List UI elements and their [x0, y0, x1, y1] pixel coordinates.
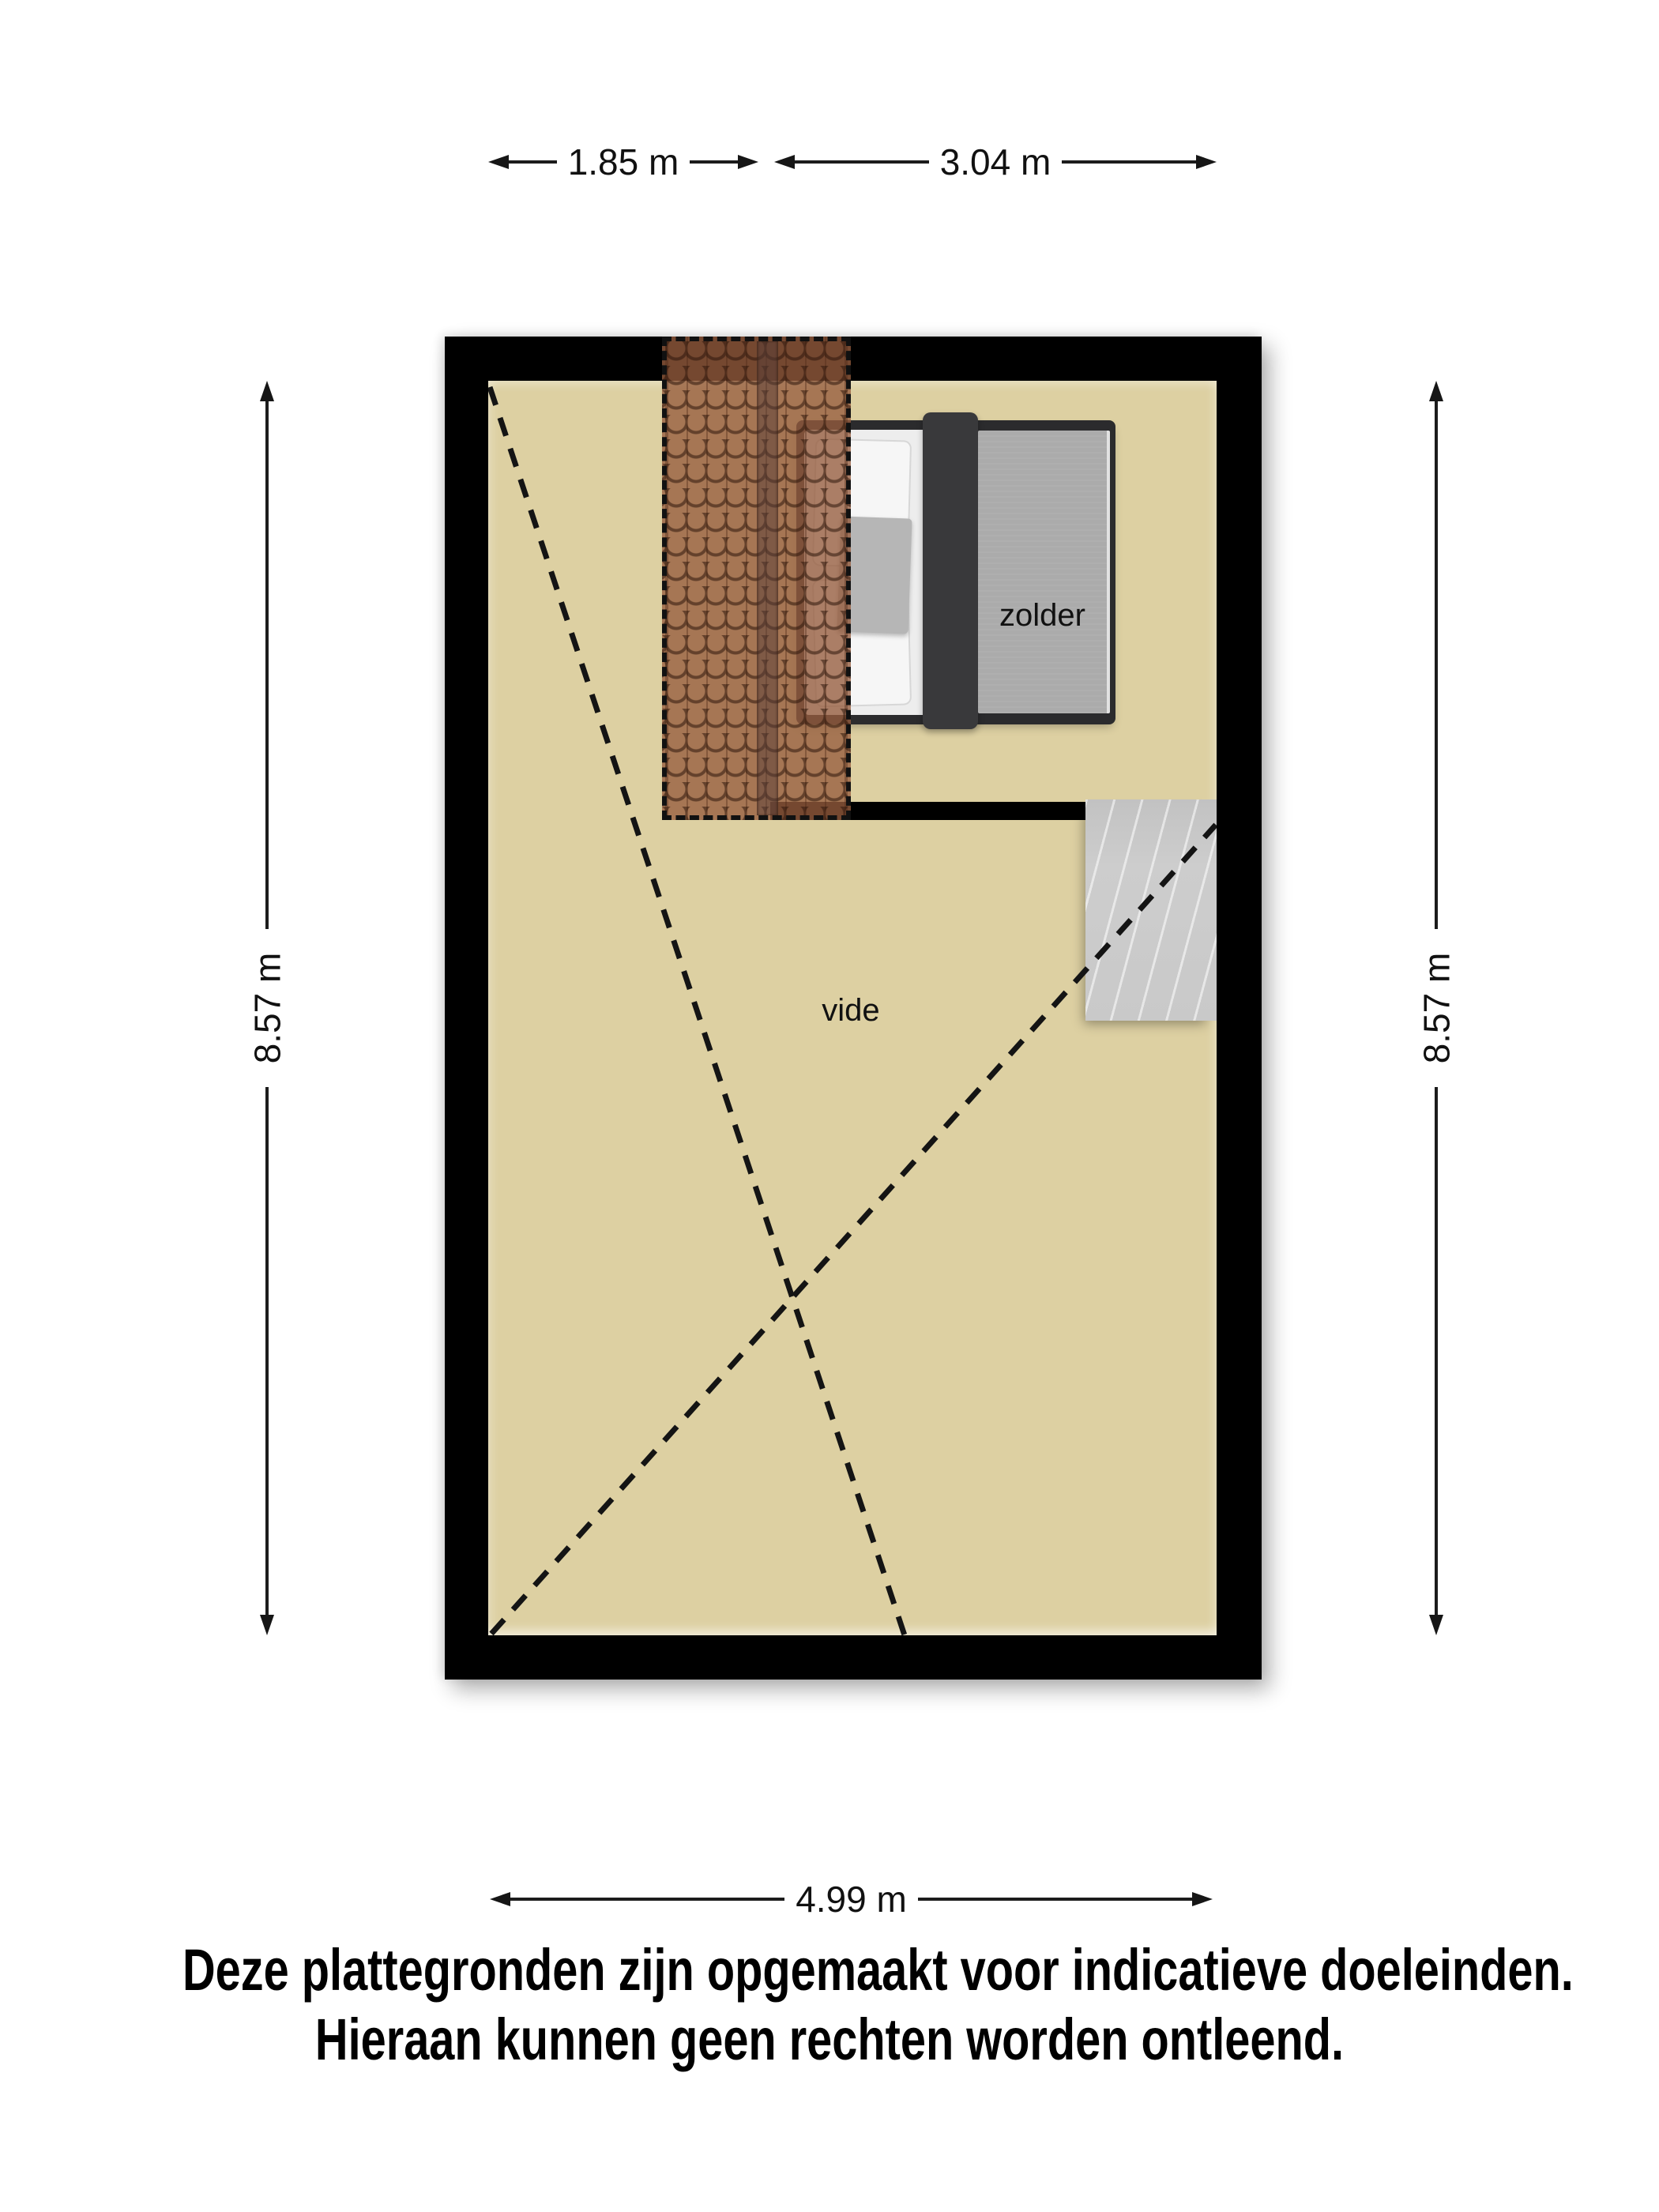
dimension-label: 3.04 m — [929, 144, 1063, 180]
dimension-left: 8.57 m — [243, 381, 291, 1635]
dimension-line — [1435, 1087, 1438, 1615]
arrowhead-up-icon — [260, 381, 274, 401]
dimension-line — [510, 1898, 784, 1901]
dimension-line — [690, 160, 738, 164]
floor-area: zolder vide — [488, 381, 1217, 1635]
arrowhead-left-icon — [774, 155, 795, 169]
dimension-line — [509, 160, 557, 164]
bed-duvet: zolder — [978, 431, 1110, 713]
dimension-line — [918, 1898, 1192, 1901]
room-label-vide: vide — [772, 993, 930, 1029]
dimension-line — [1062, 160, 1196, 164]
arrowhead-right-icon — [738, 155, 758, 169]
staircase — [1085, 799, 1217, 1021]
dimension-line — [265, 401, 269, 929]
dimension-label: 8.57 m — [1418, 953, 1454, 1064]
dimension-label: 4.99 m — [784, 1881, 918, 1917]
floorplan: zolder vide — [445, 337, 1262, 1680]
arrowhead-down-icon — [1429, 1615, 1443, 1635]
dimension-line — [1435, 401, 1438, 929]
dimension-label-box: 8.57 m — [212, 929, 323, 1087]
dimension-bottom: 4.99 m — [490, 1881, 1213, 1917]
dimension-line — [265, 1087, 269, 1615]
dimension-right: 8.57 m — [1413, 381, 1460, 1635]
dimension-line — [795, 160, 929, 164]
roof-overlay — [662, 337, 851, 820]
arrowhead-right-icon — [1196, 155, 1217, 169]
arrowhead-down-icon — [260, 1615, 274, 1635]
disclaimer: Deze plattegronden zijn opgemaakt voor i… — [0, 1935, 1659, 2075]
dimension-label-box: 8.57 m — [1381, 929, 1492, 1087]
arrowhead-left-icon — [490, 1892, 510, 1906]
dimension-label: 1.85 m — [557, 144, 690, 180]
arrowhead-up-icon — [1429, 381, 1443, 401]
dimension-top-left: 1.85 m — [488, 144, 758, 180]
arrowhead-left-icon — [488, 155, 509, 169]
room-label-zolder: zolder — [978, 598, 1107, 634]
disclaimer-line-2: Hieraan kunnen geen rechten worden ontle… — [182, 2005, 1477, 2075]
dimension-top-right: 3.04 m — [774, 144, 1217, 180]
bed-blanket-dark — [923, 412, 978, 729]
dimension-label: 8.57 m — [249, 953, 285, 1064]
arrowhead-right-icon — [1192, 1892, 1213, 1906]
roof-ridge — [757, 341, 778, 815]
disclaimer-line-1: Deze plattegronden zijn opgemaakt voor i… — [182, 1935, 1477, 2005]
